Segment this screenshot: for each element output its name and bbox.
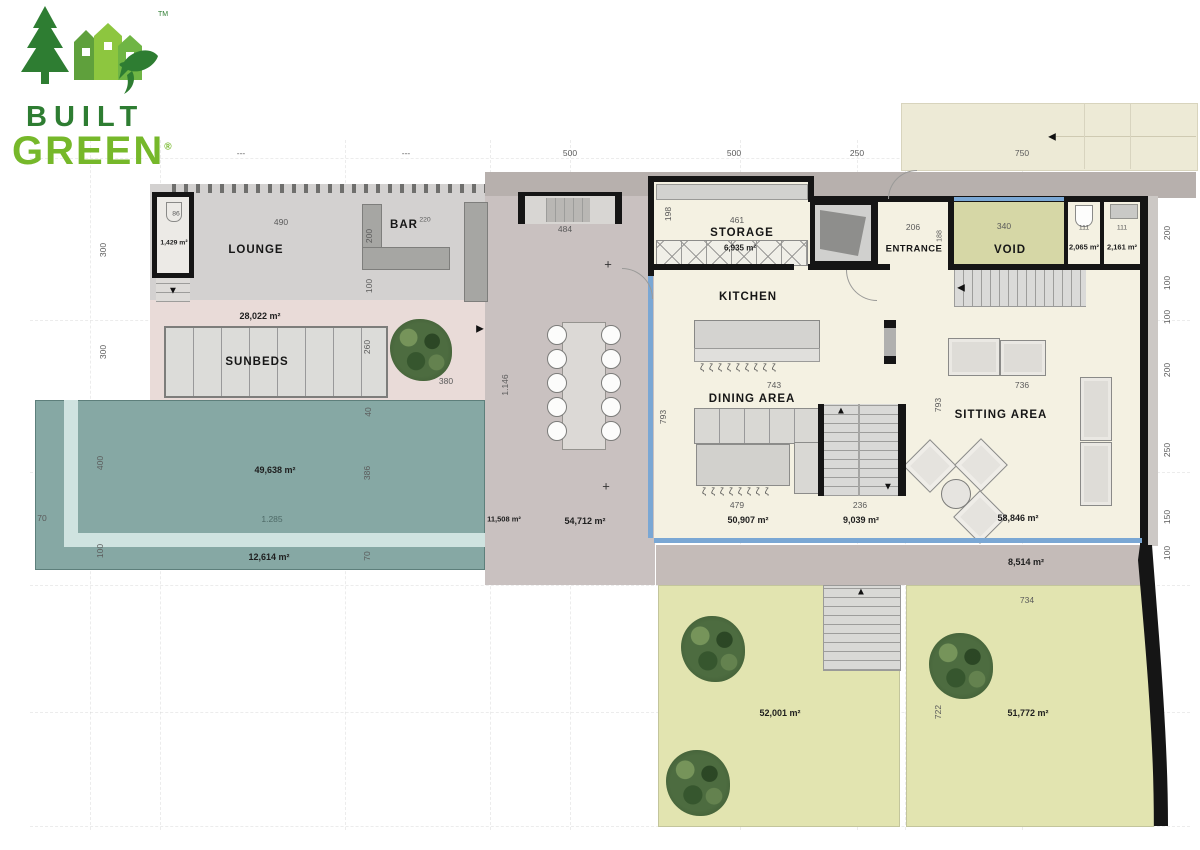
- dim-right-1: 200: [1162, 226, 1172, 240]
- window-south: [654, 538, 1142, 543]
- wall: [1064, 202, 1068, 264]
- dim-left-4: 100: [95, 544, 105, 558]
- pergola-slats: [172, 184, 485, 193]
- area-label-walkway: 8,514 m²: [1008, 557, 1044, 567]
- dim-top-1: ---: [237, 148, 246, 158]
- area-label-pool-deck: 12,614 m²: [248, 552, 289, 562]
- chair: [601, 421, 621, 441]
- wall: [948, 200, 954, 266]
- dim-guest-wc-width: 111: [1117, 225, 1127, 232]
- wall: [1100, 202, 1104, 264]
- dim-right-7: 100: [1162, 546, 1172, 560]
- area-label-guest-wc: 2,161 m²: [1107, 243, 1137, 252]
- dining-stools-row: ζζζζζζζζ: [702, 486, 774, 496]
- window-void-north: [954, 197, 1064, 201]
- pool-edge-vertical: [64, 400, 78, 547]
- sofa: [948, 338, 1000, 376]
- dining-table: [696, 444, 790, 486]
- sofa: [1000, 340, 1046, 376]
- chair: [601, 373, 621, 393]
- sink: [1110, 204, 1138, 219]
- dim-storage-width: 461: [730, 215, 744, 225]
- dim-right-6: 150: [1162, 510, 1172, 524]
- void-stairs: [954, 270, 1086, 307]
- sofa: [1080, 442, 1112, 506]
- chair: [547, 421, 567, 441]
- dim-garden-height: 722: [933, 705, 943, 719]
- garden-tree: [681, 616, 745, 682]
- built-green-logo: TM BUILT GREEN®: [12, 4, 182, 170]
- dim-stair-width: 86: [172, 211, 180, 218]
- dim-top-4: 500: [727, 148, 741, 158]
- room-label-lounge: LOUNGE: [228, 244, 283, 256]
- coffee-table: [941, 479, 971, 509]
- wall: [648, 176, 654, 276]
- kitchen-island: [694, 320, 820, 350]
- dim-top-6: 750: [1015, 148, 1029, 158]
- dim-pool-70-right: 70: [362, 551, 372, 560]
- dim-pool-length: 1.285: [261, 514, 282, 524]
- dim-sunbeds-380: 380: [439, 376, 453, 386]
- dim-left-1: 300: [98, 243, 108, 257]
- stair-rail: [818, 404, 824, 496]
- built-green-logo-icon: TM: [12, 4, 172, 96]
- dim-pool-386: 386: [362, 466, 372, 480]
- driveway-line: [1130, 103, 1131, 169]
- dim-entrance-width: 206: [906, 222, 920, 232]
- dim-lounge-width: 490: [274, 217, 288, 227]
- dim-bar-width: 220: [419, 217, 430, 224]
- driveway-line: [1084, 103, 1085, 169]
- room-label-dining-area: DINING AREA: [709, 393, 796, 405]
- wall: [872, 200, 878, 270]
- dining-counter-right: [794, 442, 820, 494]
- wall: [948, 264, 1064, 270]
- floor-plan-canvas: TM BUILT GREEN® ◀ ▼ ▶ + +: [0, 0, 1200, 850]
- chair: [547, 325, 567, 345]
- room-label-sitting-area: SITTING AREA: [955, 409, 1048, 421]
- wall: [1140, 196, 1148, 546]
- area-label-wc: 2,065 m²: [1069, 243, 1099, 252]
- dim-top-5: 250: [850, 148, 864, 158]
- window-west: [648, 276, 653, 538]
- chair: [547, 373, 567, 393]
- up-arrow-icon: ▲: [856, 587, 866, 598]
- room-label-bar: BAR: [390, 219, 418, 231]
- dim-pool-40: 40: [363, 407, 373, 416]
- logo-registered: ®: [164, 142, 173, 153]
- lounge-deck: [150, 184, 485, 300]
- dim-top-2: ---: [402, 148, 411, 158]
- left-arrow-icon: ◀: [957, 283, 965, 294]
- up-arrow-icon: ▲: [836, 406, 846, 417]
- wall: [648, 264, 794, 270]
- bar-stools-row: ζζζζζζζζζ: [700, 362, 781, 372]
- garden-stairs: [823, 585, 901, 671]
- dim-stairs-width: 236: [853, 500, 867, 510]
- room-label-kitchen: KITCHEN: [719, 291, 777, 303]
- plus-marker-icon: +: [604, 257, 612, 272]
- wall: [648, 176, 814, 182]
- room-label-entrance: ENTRANCE: [886, 244, 943, 255]
- dim-left-3: 400: [95, 456, 105, 470]
- wall: [1064, 264, 1144, 270]
- bar-counter-horizontal: [362, 247, 450, 270]
- room-label-storage: STORAGE: [710, 227, 774, 239]
- area-label-pink-terrace: 28,022 m²: [239, 311, 280, 321]
- area-label-main-terrace: 54,712 m²: [564, 516, 605, 526]
- chair: [601, 349, 621, 369]
- driveway-left-arrow-icon: ◀: [1048, 132, 1056, 143]
- dim-left-2: 300: [98, 345, 108, 359]
- dim-terrace-stair: 484: [558, 224, 572, 234]
- pool-edge-horizontal: [64, 533, 485, 547]
- area-label-garden-left: 52,001 m²: [759, 708, 800, 718]
- chair: [547, 397, 567, 417]
- kitchen-island-shelf: [694, 348, 820, 362]
- dim-sitting-width: 736: [1015, 380, 1029, 390]
- area-label-side-terrace: 11,508 m²: [487, 515, 521, 524]
- down-arrow-icon: ▼: [883, 482, 893, 493]
- logo-built-text: BUILT: [26, 103, 182, 132]
- dim-wc-width: 111: [1079, 225, 1089, 232]
- dim-bar-height: 200: [364, 229, 374, 243]
- down-arrow-icon: ▼: [168, 286, 178, 297]
- dim-entrance-height: 188: [937, 230, 944, 242]
- dim-void-width: 340: [997, 221, 1011, 231]
- area-label-pool: 49,638 m²: [254, 465, 295, 475]
- garden-right: [906, 585, 1154, 827]
- room-label-void: VOID: [994, 244, 1026, 256]
- dining-counter-top: [694, 408, 820, 444]
- area-label-stairs: 9,039 m²: [843, 515, 879, 525]
- area-label-sitting: 58,846 m²: [997, 513, 1038, 523]
- garden-tree: [666, 750, 730, 816]
- dim-top-3: 500: [563, 148, 577, 158]
- logo-tm: TM: [158, 11, 168, 18]
- dim-right-2: 100: [1162, 276, 1172, 290]
- outdoor-dining-table: [562, 322, 606, 450]
- dim-garden-width: 734: [1020, 595, 1034, 605]
- dim-right-5: 250: [1162, 443, 1172, 457]
- chair: [601, 397, 621, 417]
- stair-divider: [858, 404, 860, 496]
- stair-rail-wall: [898, 404, 906, 496]
- logo-green-text: GREEN®: [12, 132, 182, 170]
- room-label-sunbeds: SUNBEDS: [225, 356, 288, 368]
- terrace-stairs-treads: [546, 198, 590, 222]
- driveway-line: [1056, 136, 1196, 137]
- dim-sitting-height: 793: [933, 398, 943, 412]
- area-label-lounge-stair: 1,429 m²: [160, 240, 187, 247]
- area-label-dining: 50,907 m²: [727, 515, 768, 525]
- chair: [601, 325, 621, 345]
- dim-right-4: 200: [1162, 363, 1172, 377]
- right-arrow-icon: ▶: [476, 324, 484, 335]
- dim-right-3: 100: [1162, 310, 1172, 324]
- window-pier-glass: [884, 328, 896, 356]
- terrace-tree: [390, 319, 452, 381]
- chair: [547, 349, 567, 369]
- south-walkway: [656, 545, 1142, 585]
- dim-sunbeds-260: 260: [362, 340, 372, 354]
- bar-back-counter: [464, 202, 488, 302]
- dim-kitchen-width: 743: [767, 380, 781, 390]
- dim-storage-height: 198: [663, 207, 673, 221]
- area-label-storage: 6,935 m²: [724, 244, 756, 253]
- plus-marker-icon: +: [602, 479, 610, 494]
- dim-terrace-length: 1.146: [500, 374, 510, 395]
- dim-dining-height: 793: [658, 410, 668, 424]
- area-label-garden-right: 51,772 m²: [1007, 708, 1048, 718]
- garden-tree: [929, 633, 993, 699]
- dim-pool-70-left: 70: [37, 513, 46, 523]
- dim-deck: 100: [364, 279, 374, 293]
- dim-dining-width: 479: [730, 500, 744, 510]
- storage-counter: [656, 184, 808, 200]
- sofa: [1080, 377, 1112, 441]
- east-wall-shadow: [1148, 196, 1158, 546]
